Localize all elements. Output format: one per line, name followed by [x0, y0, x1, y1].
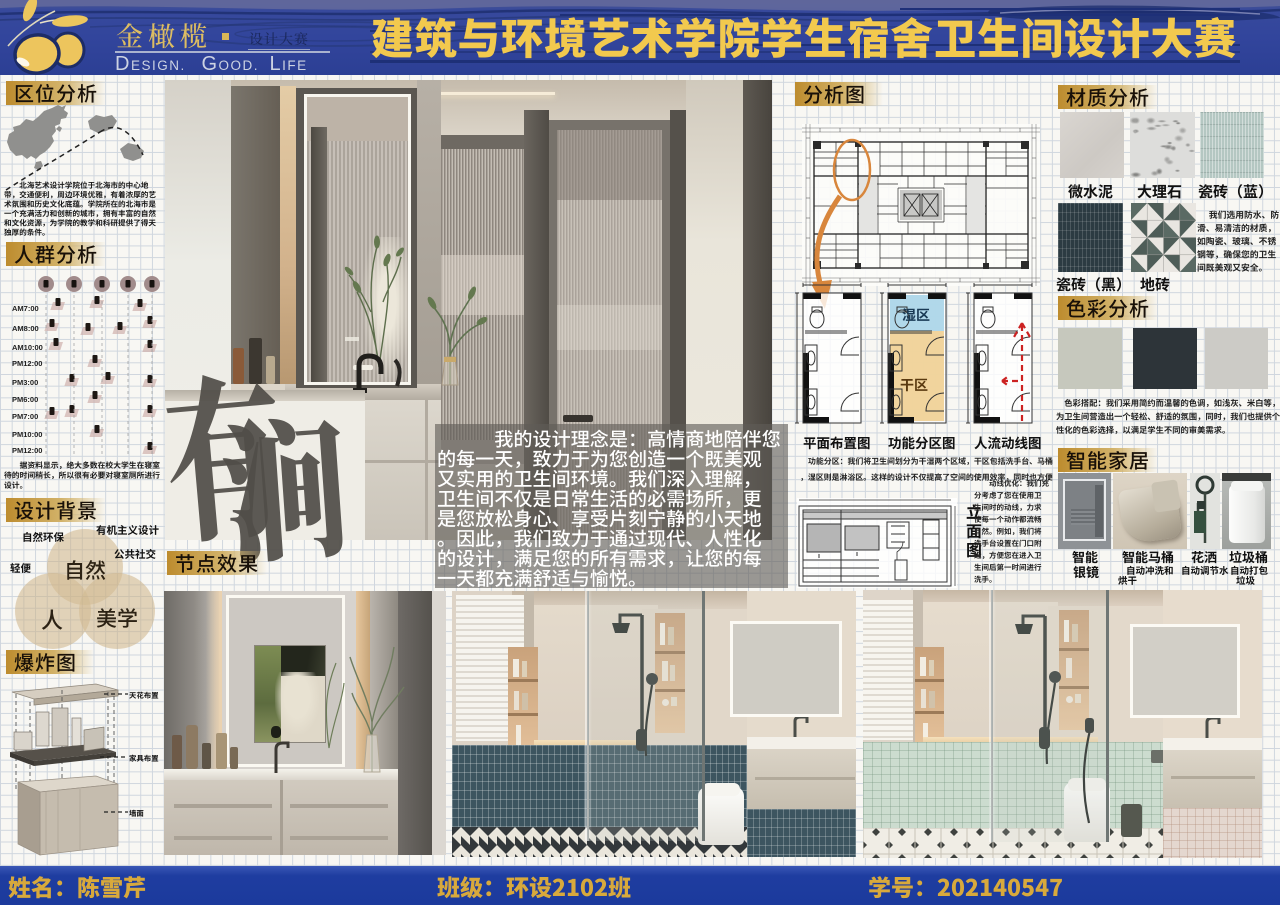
svg-text:AM10:00: AM10:00 [12, 343, 43, 352]
svg-text:AM8:00: AM8:00 [12, 324, 39, 333]
svg-text:PM12:00: PM12:00 [12, 359, 42, 368]
svg-text:PM6:00: PM6:00 [12, 395, 38, 404]
svg-text:PM7:00: PM7:00 [12, 412, 38, 421]
svg-text:PM12:00: PM12:00 [12, 446, 42, 455]
svg-text:AM7:00: AM7:00 [12, 304, 39, 313]
svg-text:PM3:00: PM3:00 [12, 378, 38, 387]
svg-text:PM10:00: PM10:00 [12, 430, 42, 439]
